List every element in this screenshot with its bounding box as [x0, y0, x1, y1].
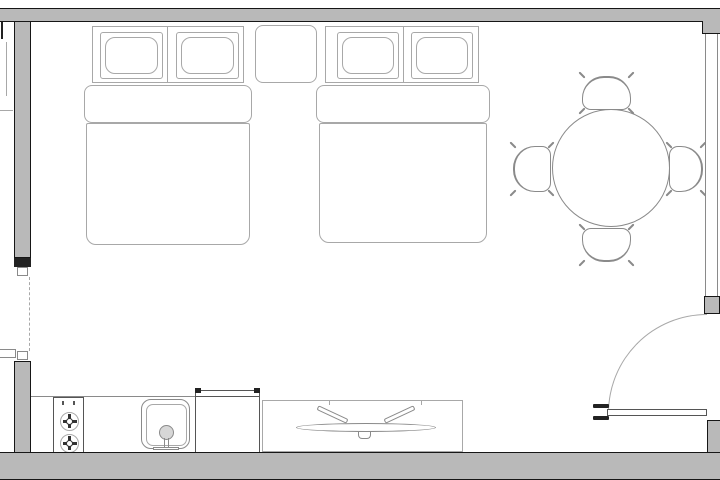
door-swing-arc	[608, 314, 707, 413]
nightstand	[255, 25, 317, 83]
stove-knob	[62, 401, 64, 405]
bed-1-pillow-right	[176, 32, 239, 79]
tv-stand-nub	[358, 432, 371, 439]
bottom-wall	[0, 452, 720, 480]
left-doorway-jamb-upper	[17, 267, 28, 276]
dining-chair-west-leg-tick	[509, 189, 516, 196]
left-wall-end-cap	[14, 258, 31, 267]
bed-1-headboard-divider	[167, 26, 168, 83]
tv-console-nick	[329, 401, 330, 405]
dining-chair-north	[580, 74, 633, 112]
bed-2-pillow-left-inner-seam	[342, 37, 394, 74]
door-side-pier	[704, 296, 720, 314]
kitchen-sink	[141, 399, 190, 449]
dining-chair-south-leg-tick	[578, 223, 585, 230]
bed-2-pillow-right-inner-seam	[416, 37, 468, 74]
dining-chair-north-leg-tick	[578, 71, 585, 78]
top-right-corner-wall	[702, 21, 720, 34]
stove-burner-center	[66, 418, 73, 425]
tv-console-nick	[421, 401, 422, 405]
door-handle-mark-upper	[593, 404, 609, 408]
top-wall	[0, 8, 720, 22]
bed-1-pillow-left	[100, 32, 163, 79]
bed-2-duvet	[319, 123, 487, 243]
dining-chair-west-leg-tick	[509, 141, 516, 148]
refrigerator-hinge-mark	[195, 388, 201, 393]
adjacent-room-wall-stub	[1, 22, 3, 39]
bed-1-pillow-right-inner-seam	[181, 37, 234, 74]
dining-chair-west-seat	[513, 146, 551, 192]
dining-chair-south-leg-tick	[578, 259, 585, 266]
left-wall-upper	[14, 21, 31, 258]
dining-chair-west	[511, 144, 553, 194]
stove-knob	[73, 401, 75, 405]
left-doorway-jamb-lower	[17, 351, 28, 360]
stove	[53, 397, 84, 454]
dining-chair-east	[667, 144, 705, 194]
dining-chair-east-seat	[669, 146, 703, 192]
bed-1-duvet-fold	[84, 85, 252, 123]
adjacent-room-fixture-line-v	[6, 42, 7, 96]
dining-chair-south-leg-tick	[627, 259, 634, 266]
tv-leg	[383, 405, 415, 423]
bed-2-duvet-fold	[316, 85, 490, 123]
bed-2-pillow-left	[337, 32, 399, 79]
door-leaf	[607, 409, 707, 416]
adjacent-room-shelf	[0, 349, 16, 358]
bed-2-headboard-divider	[403, 26, 404, 83]
stove-burner-center	[66, 440, 73, 447]
dining-chair-west-leg-tick	[547, 189, 554, 196]
dining-chair-west-leg-tick	[547, 141, 554, 148]
bed-1-duvet	[86, 123, 250, 245]
refrigerator-hinge-mark	[254, 388, 260, 393]
dining-chair-south	[580, 226, 633, 264]
dining-chair-south-seat	[582, 228, 631, 262]
tv-screen	[296, 423, 436, 432]
bed-2-pillow-right	[411, 32, 473, 79]
adjacent-room-fixture-line-h	[0, 110, 13, 111]
left-wall-lower	[14, 361, 31, 456]
bed-1-pillow-left-inner-seam	[105, 37, 158, 74]
tv	[296, 408, 436, 440]
dining-table	[552, 109, 670, 227]
sink-drain-base	[153, 447, 179, 450]
dining-chair-north-leg-tick	[627, 71, 634, 78]
dining-chair-east-leg-tick	[665, 141, 672, 148]
door-handle-mark-lower	[593, 416, 609, 420]
refrigerator-top-seam	[196, 396, 259, 397]
tv-leg	[316, 405, 348, 423]
refrigerator	[195, 390, 260, 455]
bottom-right-wall	[707, 420, 720, 454]
dining-chair-north-seat	[582, 76, 631, 110]
dining-chair-east-leg-tick	[665, 189, 672, 196]
right-window	[705, 34, 718, 296]
dining-chair-north-leg-tick	[578, 107, 585, 114]
dining-chair-south-leg-tick	[627, 223, 634, 230]
floor-plan-canvas	[0, 0, 720, 480]
left-doorway-dashed-line	[29, 277, 30, 351]
